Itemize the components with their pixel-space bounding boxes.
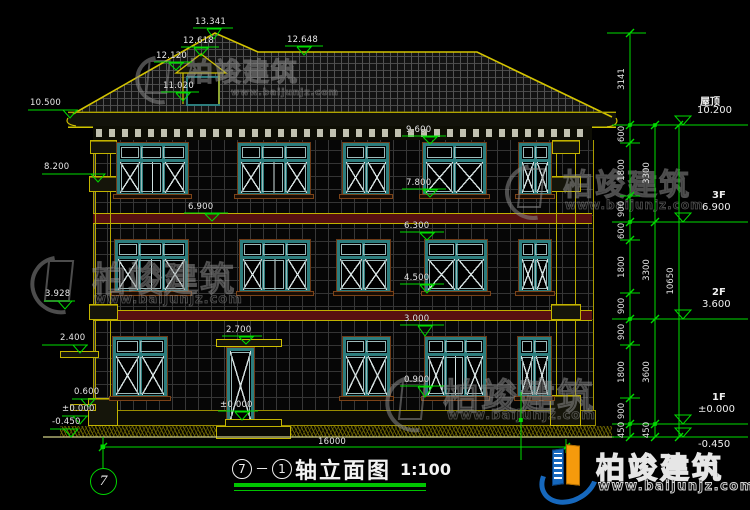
level-value: 10.200 [697,105,732,116]
level-label: 0.600 [74,387,99,397]
dimension-lines [0,0,750,510]
level-label: 10.500 [30,98,61,108]
level-name: 3F [712,190,726,201]
level-label: 12.618 [183,36,214,46]
level-label: 3.928 [45,289,70,299]
title-axis-start: 7 [232,459,252,479]
dim-value: 900 [617,403,627,419]
title-underline-thin [234,490,426,491]
level-label: 2.700 [226,325,251,335]
level-label: 11.020 [163,81,194,91]
level-label: 7.800 [406,178,431,188]
level-value: 3.600 [702,299,731,310]
axis-number: 7 [100,473,108,490]
dim-value: 3300 [642,259,652,281]
level-label: 4.500 [404,273,429,283]
brand-url: www.baijunjz.com [598,479,750,494]
level-label: 6.900 [188,202,213,212]
level-name: 2F [712,287,726,298]
level-label: 2.400 [60,333,85,343]
level-label: ±0.000 [220,400,253,410]
level-label: 3.000 [404,314,429,324]
level-label: -0.450 [52,417,81,427]
dim-value: 1800 [617,361,627,383]
elevation-drawing: 柏竣建筑 www.baijunjz.com 柏竣建筑 www.baijunjz.… [0,0,750,510]
brand-logo-icon [566,444,580,485]
dim-value: 10650 [666,267,676,294]
dim-value: 1800 [617,256,627,278]
dim-value: 450 [617,422,627,438]
title-axis-end: 1 [272,459,292,479]
level-value: 6.900 [702,202,731,213]
title-underline-thick [234,483,426,487]
dim-value: 900 [617,201,627,217]
level-label: 13.341 [195,17,226,27]
level-label: 8.200 [44,162,69,172]
brand-logo: 柏竣建筑 www.baijunjz.com [538,443,748,505]
brand-logo-icon [554,453,562,479]
dim-value: 3300 [642,162,652,184]
dim-value: 1800 [617,159,627,181]
level-value: ±0.000 [698,404,735,415]
title-dash: － [255,459,269,479]
axis-bubble-7: 7 [90,468,117,495]
title-text: 轴立面图 [295,453,391,485]
level-label: 0.900 [404,375,429,385]
dim-value: 600 [617,126,627,142]
level-label: 12.648 [287,35,318,45]
level-label: ±0.000 [62,404,95,414]
dim-value: 900 [617,298,627,314]
level-label: 12.120 [156,51,187,61]
level-label: 6.300 [404,221,429,231]
dim-value: 600 [617,223,627,239]
dim-value: 900 [617,324,627,340]
title-scale: 1:100 [400,460,451,479]
level-label: 9.600 [406,125,431,135]
dim-value: 3600 [642,361,652,383]
level-name: 1F [712,392,726,403]
dim-value: 3141 [617,68,627,90]
overall-width-dim: 16000 [318,437,346,447]
dim-value: 450 [642,422,652,438]
drawing-title: 7 － 1 轴立面图 1:100 [232,453,451,485]
